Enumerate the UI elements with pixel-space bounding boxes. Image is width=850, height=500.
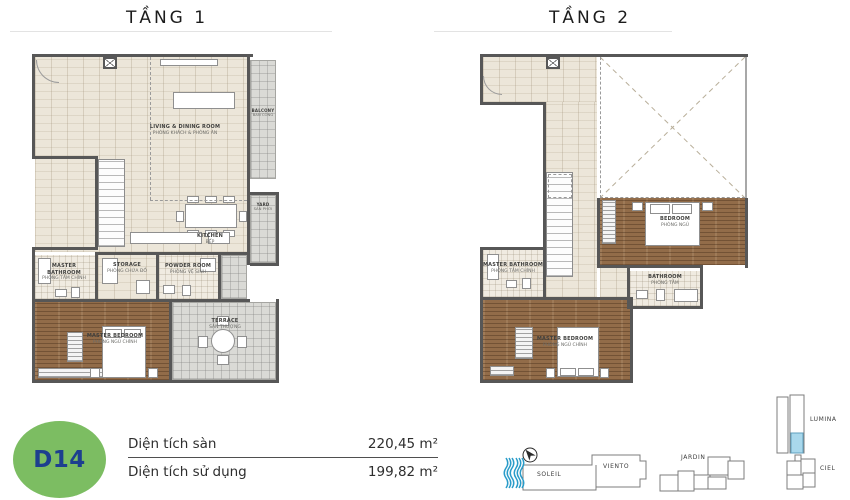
furniture xyxy=(600,368,609,378)
wall xyxy=(95,156,98,250)
site-label-viento: VIENTO xyxy=(603,463,629,470)
room-name: POWDER ROOM xyxy=(158,263,218,270)
area-label: Diện tích sử dụng xyxy=(128,464,247,480)
room-sub: PHÒNG KHÁCH & PHÒNG ĂN xyxy=(125,131,245,137)
room-label-kitchen: KITCHEN BẾP xyxy=(170,233,250,245)
furniture xyxy=(239,211,247,222)
room-label-balcony: BALCONY BAN CÔNG xyxy=(237,108,289,118)
furniture xyxy=(148,368,158,378)
site-label-ciel: CIEL xyxy=(820,465,836,472)
furniture xyxy=(674,289,698,302)
wall xyxy=(597,265,703,268)
room-sub: PHÒNG CHỨA ĐỒ xyxy=(98,269,156,275)
outdoor-floor xyxy=(250,60,276,179)
elevator-shaft xyxy=(103,57,117,69)
room-label-yard: YARD SÂN PHƠI xyxy=(237,202,289,212)
room-sub: PHÒNG NGỦ CHÍNH xyxy=(515,343,615,349)
wall xyxy=(480,54,748,57)
water-waves-icon xyxy=(504,458,524,488)
dashed-void xyxy=(548,174,572,198)
outdoor-floor xyxy=(221,255,247,299)
wall xyxy=(480,54,483,105)
furniture xyxy=(163,285,175,294)
furniture xyxy=(632,202,643,211)
wall xyxy=(543,102,546,252)
furniture xyxy=(198,336,208,348)
wall xyxy=(32,156,98,159)
wall xyxy=(32,299,250,302)
furniture xyxy=(546,368,555,378)
room-label-master-bedroom-f2: MASTER BEDROOM PHÒNG NGỦ CHÍNH xyxy=(515,336,615,348)
area-table: Diện tích sàn 220,45 m² Diện tích sử dụn… xyxy=(128,430,438,485)
room-sub: PHÒNG NGỦ xyxy=(640,223,710,229)
furniture xyxy=(182,285,191,296)
floor2-title-rule xyxy=(434,31,672,32)
dashed-line xyxy=(600,57,602,198)
room-label-living: LIVING & DINING ROOM PHÒNG KHÁCH & PHÒNG… xyxy=(125,124,245,136)
room-label-master-bathroom-f2: MASTER BATHROOM PHÒNG TẮM CHÍNH xyxy=(482,262,544,274)
site-plan: SOLEIL VIENTO JARDIN LUMINA CIEL xyxy=(492,383,850,500)
void-cross-icon xyxy=(600,57,745,198)
room-sub: BAN CÔNG xyxy=(237,113,289,118)
furniture xyxy=(176,211,184,222)
furniture xyxy=(522,278,531,289)
site-plan-map xyxy=(492,383,850,500)
room-name: MASTER BATHROOM xyxy=(482,262,544,269)
room-sub: PHÒNG VỆ SINH xyxy=(158,270,218,276)
furniture xyxy=(160,59,218,66)
room-sub: PHÒNG TẮM xyxy=(628,281,702,287)
wall xyxy=(32,247,98,250)
area-label: Diện tích sàn xyxy=(128,436,216,452)
room-label-master-bedroom: MASTER BEDROOM PHÒNG NGỦ CHÍNH xyxy=(65,333,165,345)
wall xyxy=(630,300,633,383)
wall xyxy=(480,247,546,250)
window-wall xyxy=(745,57,747,198)
wall xyxy=(169,302,172,383)
wall xyxy=(95,252,250,255)
wall xyxy=(250,192,279,195)
wall xyxy=(95,252,98,302)
dashed-line xyxy=(600,197,745,199)
room-sub: PHÒNG NGỦ CHÍNH xyxy=(65,340,165,346)
furniture xyxy=(656,289,665,301)
furniture xyxy=(702,202,713,211)
wardrobe-hatch xyxy=(490,366,514,376)
room-sub: PHÒNG TẮM CHÍNH xyxy=(34,276,94,282)
furniture xyxy=(672,204,692,214)
furniture xyxy=(71,287,80,298)
room-label-master-bathroom: MASTER BATHROOM PHÒNG TẮM CHÍNH xyxy=(34,263,94,282)
furniture xyxy=(217,355,229,365)
furniture xyxy=(136,280,150,294)
wall xyxy=(597,198,600,268)
stairs xyxy=(98,159,125,247)
furniture xyxy=(173,92,235,109)
room-sub: BẾP xyxy=(170,240,250,246)
area-value: 220,45 m² xyxy=(368,436,438,452)
round-table xyxy=(211,329,235,353)
unit-highlight xyxy=(791,433,803,453)
furniture xyxy=(237,336,247,348)
wall xyxy=(745,198,748,268)
site-label-lumina: LUMINA xyxy=(810,416,837,423)
area-row-floor-area: Diện tích sàn 220,45 m² xyxy=(128,430,438,457)
room-label-storage: STORAGE PHÒNG CHỨA ĐỒ xyxy=(98,262,156,274)
site-label-jardin: JARDIN xyxy=(681,454,705,461)
floor2-plan: BEDROOM PHÒNG NGỦ MASTER BATHROOM PHÒNG … xyxy=(470,50,760,390)
unit-code: D14 xyxy=(33,447,86,473)
furniture xyxy=(578,368,594,376)
furniture xyxy=(636,290,648,299)
unit-badge: D14 xyxy=(13,421,106,498)
floor2-title: TẦNG 2 xyxy=(549,8,631,28)
room-label-powder: POWDER ROOM PHÒNG VỆ SINH xyxy=(158,263,218,275)
wall xyxy=(250,263,279,266)
room-name: MASTER BATHROOM xyxy=(34,263,94,276)
building-jardin xyxy=(660,457,744,491)
room-sub: SÂN PHƠI xyxy=(237,207,289,212)
room-label-bathroom: BATHROOM PHÒNG TẮM xyxy=(628,274,702,286)
indoor-floor xyxy=(600,268,627,297)
area-row-usable-area: Diện tích sử dụng 199,82 m² xyxy=(128,458,438,485)
floorplan-page: TẦNG 1 TẦNG 2 LIVING & DINING ROOM PHÒNG… xyxy=(0,0,850,500)
dashed-line xyxy=(150,200,247,202)
wall xyxy=(32,54,35,159)
furniture xyxy=(90,368,100,378)
room-sub: PHÒNG TẮM CHÍNH xyxy=(482,269,544,275)
wall xyxy=(627,306,703,309)
furniture xyxy=(55,289,67,297)
wall xyxy=(32,54,253,57)
wardrobe-hatch xyxy=(602,200,616,244)
wall xyxy=(276,299,279,383)
compass-icon xyxy=(522,447,537,462)
furniture xyxy=(560,368,576,376)
room-sub: SÂN THƯỢNG xyxy=(190,325,260,331)
floor1-plan: LIVING & DINING ROOM PHÒNG KHÁCH & PHÒNG… xyxy=(10,50,320,390)
floor1-title: TẦNG 1 xyxy=(126,8,208,28)
site-label-soleil: SOLEIL xyxy=(537,471,561,478)
elevator-shaft xyxy=(546,57,560,69)
wall xyxy=(480,380,633,383)
furniture xyxy=(185,204,237,228)
room-label-bedroom: BEDROOM PHÒNG NGỦ xyxy=(640,216,710,228)
wall xyxy=(480,102,546,105)
room-label-terrace: TERRACE SÂN THƯỢNG xyxy=(190,318,260,330)
wall xyxy=(32,380,279,383)
floor1-title-rule xyxy=(10,31,332,32)
area-value: 199,82 m² xyxy=(368,464,438,480)
wall xyxy=(480,297,633,300)
wall xyxy=(156,252,159,302)
building-ciel xyxy=(787,459,815,489)
wall xyxy=(218,252,221,302)
furniture xyxy=(506,280,517,288)
furniture xyxy=(650,204,670,214)
